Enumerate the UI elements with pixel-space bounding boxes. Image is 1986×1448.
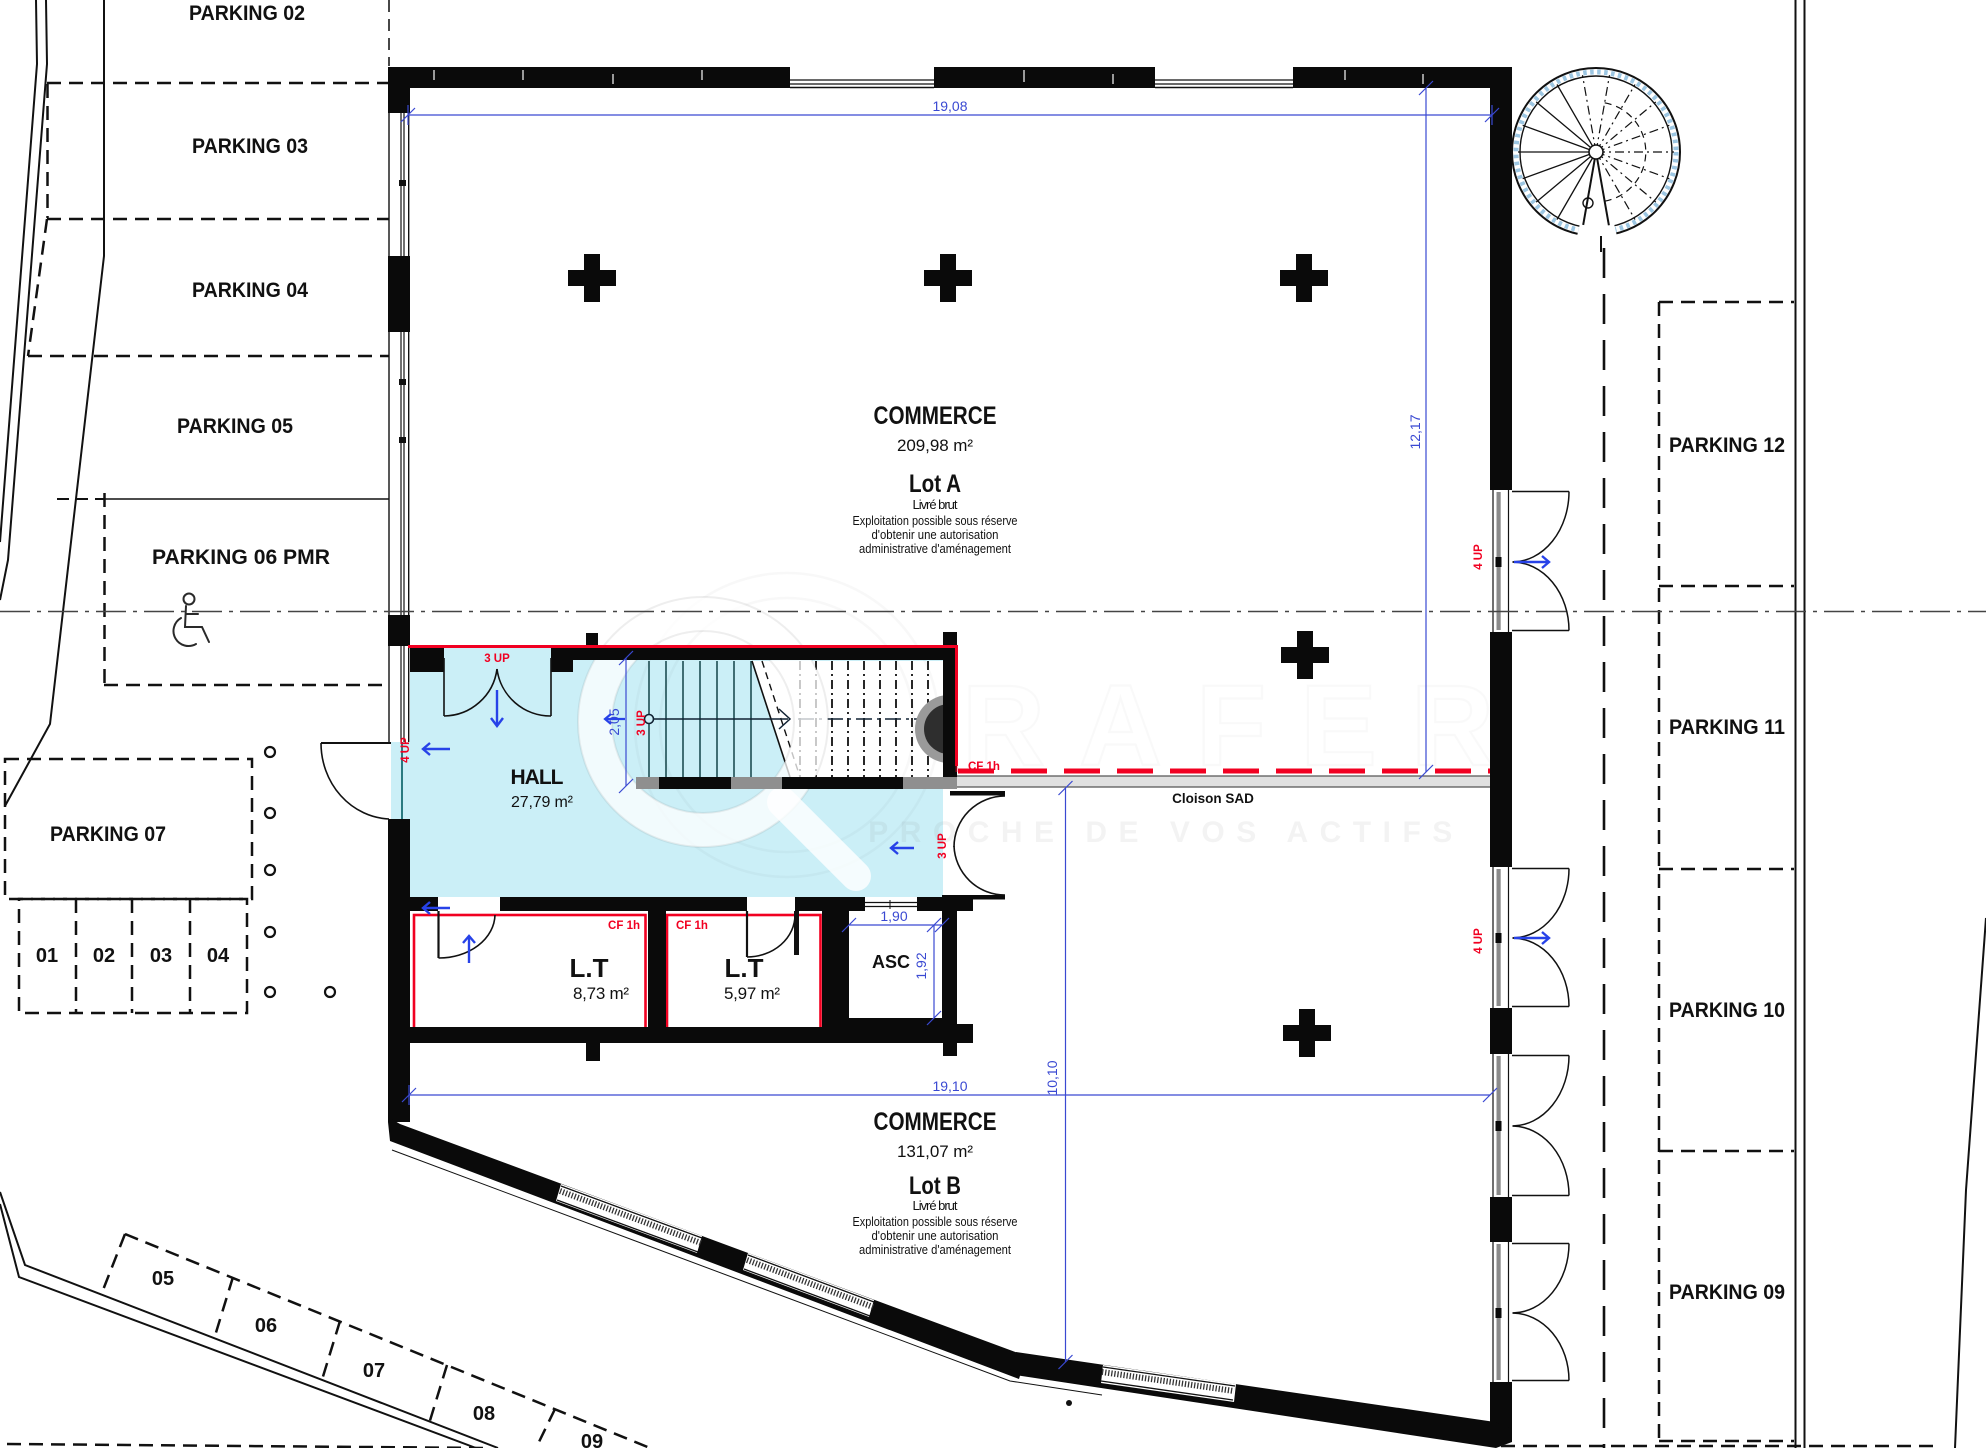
svg-text:1,92: 1,92 — [913, 952, 929, 979]
svg-text:209,98 m²: 209,98 m² — [897, 436, 973, 455]
svg-text:L.T: L.T — [570, 953, 609, 983]
svg-text:ASC: ASC — [872, 952, 910, 972]
svg-text:01: 01 — [36, 945, 58, 967]
svg-text:administrative d'aménagement: administrative d'aménagement — [859, 541, 1011, 556]
svg-text:L.T: L.T — [725, 953, 764, 983]
svg-text:PARKING 07: PARKING 07 — [50, 823, 166, 846]
svg-text:PROCHE DE VOS ACTIFS: PROCHE DE VOS ACTIFS — [868, 816, 1464, 849]
svg-text:5,97 m²: 5,97 m² — [724, 984, 780, 1003]
svg-text:PARKING 02: PARKING 02 — [189, 2, 305, 25]
svg-text:06: 06 — [255, 1315, 277, 1337]
svg-text:CF 1h: CF 1h — [968, 761, 1000, 773]
svg-text:Exploitation possible sous rés: Exploitation possible sous réserve — [853, 513, 1018, 528]
svg-text:PARKING 12: PARKING 12 — [1669, 434, 1785, 457]
svg-text:d'obtenir une autorisation: d'obtenir une autorisation — [872, 527, 999, 542]
svg-text:05: 05 — [152, 1268, 174, 1290]
svg-text:PARKING 04: PARKING 04 — [192, 279, 308, 302]
svg-text:131,07 m²: 131,07 m² — [897, 1142, 973, 1161]
svg-text:4 UP: 4 UP — [400, 737, 412, 763]
svg-text:12,17: 12,17 — [1407, 414, 1423, 449]
svg-text:3 UP: 3 UP — [937, 833, 949, 859]
svg-text:09: 09 — [581, 1431, 603, 1448]
svg-text:PARKING 11: PARKING 11 — [1669, 716, 1785, 739]
svg-text:Lot B: Lot B — [909, 1172, 961, 1200]
svg-text:27,79 m²: 27,79 m² — [511, 794, 574, 811]
svg-text:1,90: 1,90 — [880, 908, 907, 924]
svg-text:3 UP: 3 UP — [484, 653, 510, 665]
svg-text:Lot A: Lot A — [909, 470, 961, 498]
svg-text:CF 1h: CF 1h — [676, 920, 708, 932]
svg-text:d'obtenir une autorisation: d'obtenir une autorisation — [872, 1228, 999, 1243]
svg-text:Exploitation possible sous rés: Exploitation possible sous réserve — [853, 1214, 1018, 1229]
svg-text:PARKING 05: PARKING 05 — [177, 415, 293, 438]
svg-text:07: 07 — [363, 1360, 385, 1382]
svg-text:03: 03 — [150, 945, 172, 967]
svg-text:administrative d'aménagement: administrative d'aménagement — [859, 1242, 1011, 1257]
svg-text:08: 08 — [473, 1403, 495, 1425]
svg-text:CF 1h: CF 1h — [608, 920, 640, 932]
svg-text:19,10: 19,10 — [932, 1078, 967, 1094]
svg-text:02: 02 — [93, 945, 115, 967]
svg-text:PARKING 06 PMR: PARKING 06 PMR — [152, 546, 330, 569]
svg-text:HALL: HALL — [511, 766, 564, 789]
svg-text:8,73 m²: 8,73 m² — [573, 984, 629, 1003]
svg-text:3 UP: 3 UP — [636, 710, 648, 736]
svg-text:19,08: 19,08 — [932, 98, 967, 114]
svg-text:4 UP: 4 UP — [1473, 544, 1485, 570]
svg-text:PARKING 09: PARKING 09 — [1669, 1281, 1785, 1304]
svg-text:04: 04 — [207, 945, 230, 967]
svg-text:COMMERCE: COMMERCE — [874, 402, 997, 430]
svg-text:Livré brut: Livré brut — [913, 497, 958, 512]
svg-text:Cloison SAD: Cloison SAD — [1172, 791, 1254, 806]
svg-text:10,10: 10,10 — [1044, 1060, 1060, 1095]
svg-text:Livré brut: Livré brut — [913, 1198, 958, 1213]
svg-text:PARKING 03: PARKING 03 — [192, 135, 308, 158]
svg-text:PARKING 10: PARKING 10 — [1669, 999, 1785, 1022]
svg-text:COMMERCE: COMMERCE — [874, 1108, 997, 1136]
svg-text:4 UP: 4 UP — [1473, 928, 1485, 954]
